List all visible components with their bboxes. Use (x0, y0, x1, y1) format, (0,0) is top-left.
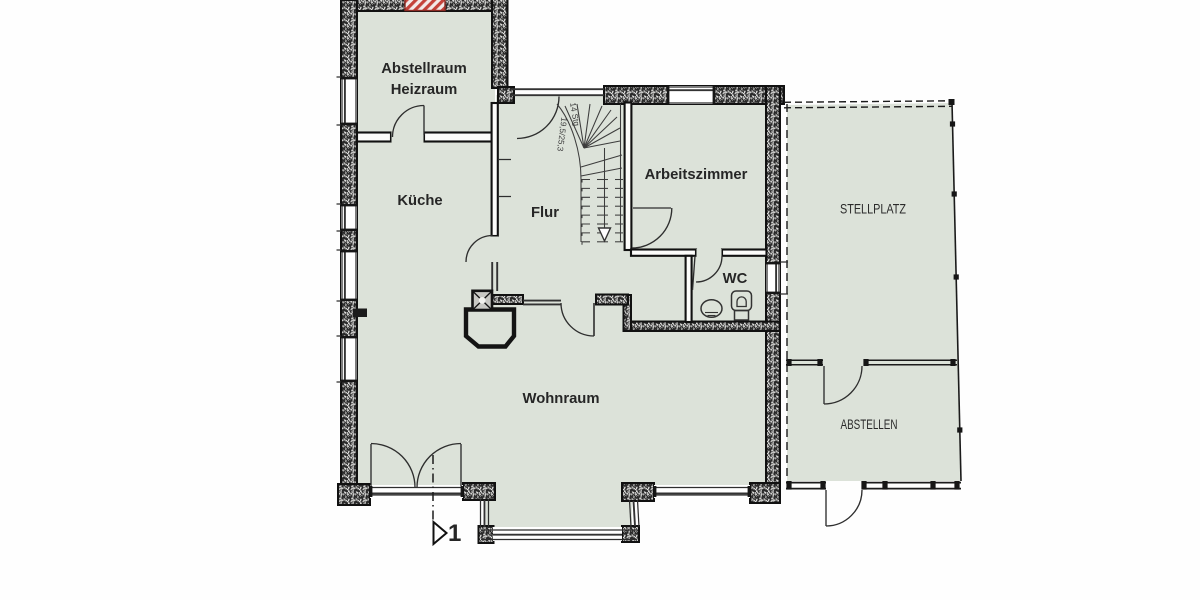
svg-text:Wohnraum: Wohnraum (523, 391, 600, 407)
svg-text:STELLPLATZ: STELLPLATZ (840, 201, 906, 217)
svg-text:ABSTELLEN: ABSTELLEN (841, 417, 898, 432)
svg-text:Heizraum: Heizraum (391, 82, 458, 98)
svg-text:Küche: Küche (397, 193, 442, 209)
svg-text:WC: WC (723, 271, 748, 287)
svg-text:Flur: Flur (531, 205, 559, 221)
svg-text:1: 1 (448, 520, 461, 547)
svg-text:Arbeitszimmer: Arbeitszimmer (645, 167, 748, 183)
svg-text:Abstellraum: Abstellraum (381, 61, 467, 77)
